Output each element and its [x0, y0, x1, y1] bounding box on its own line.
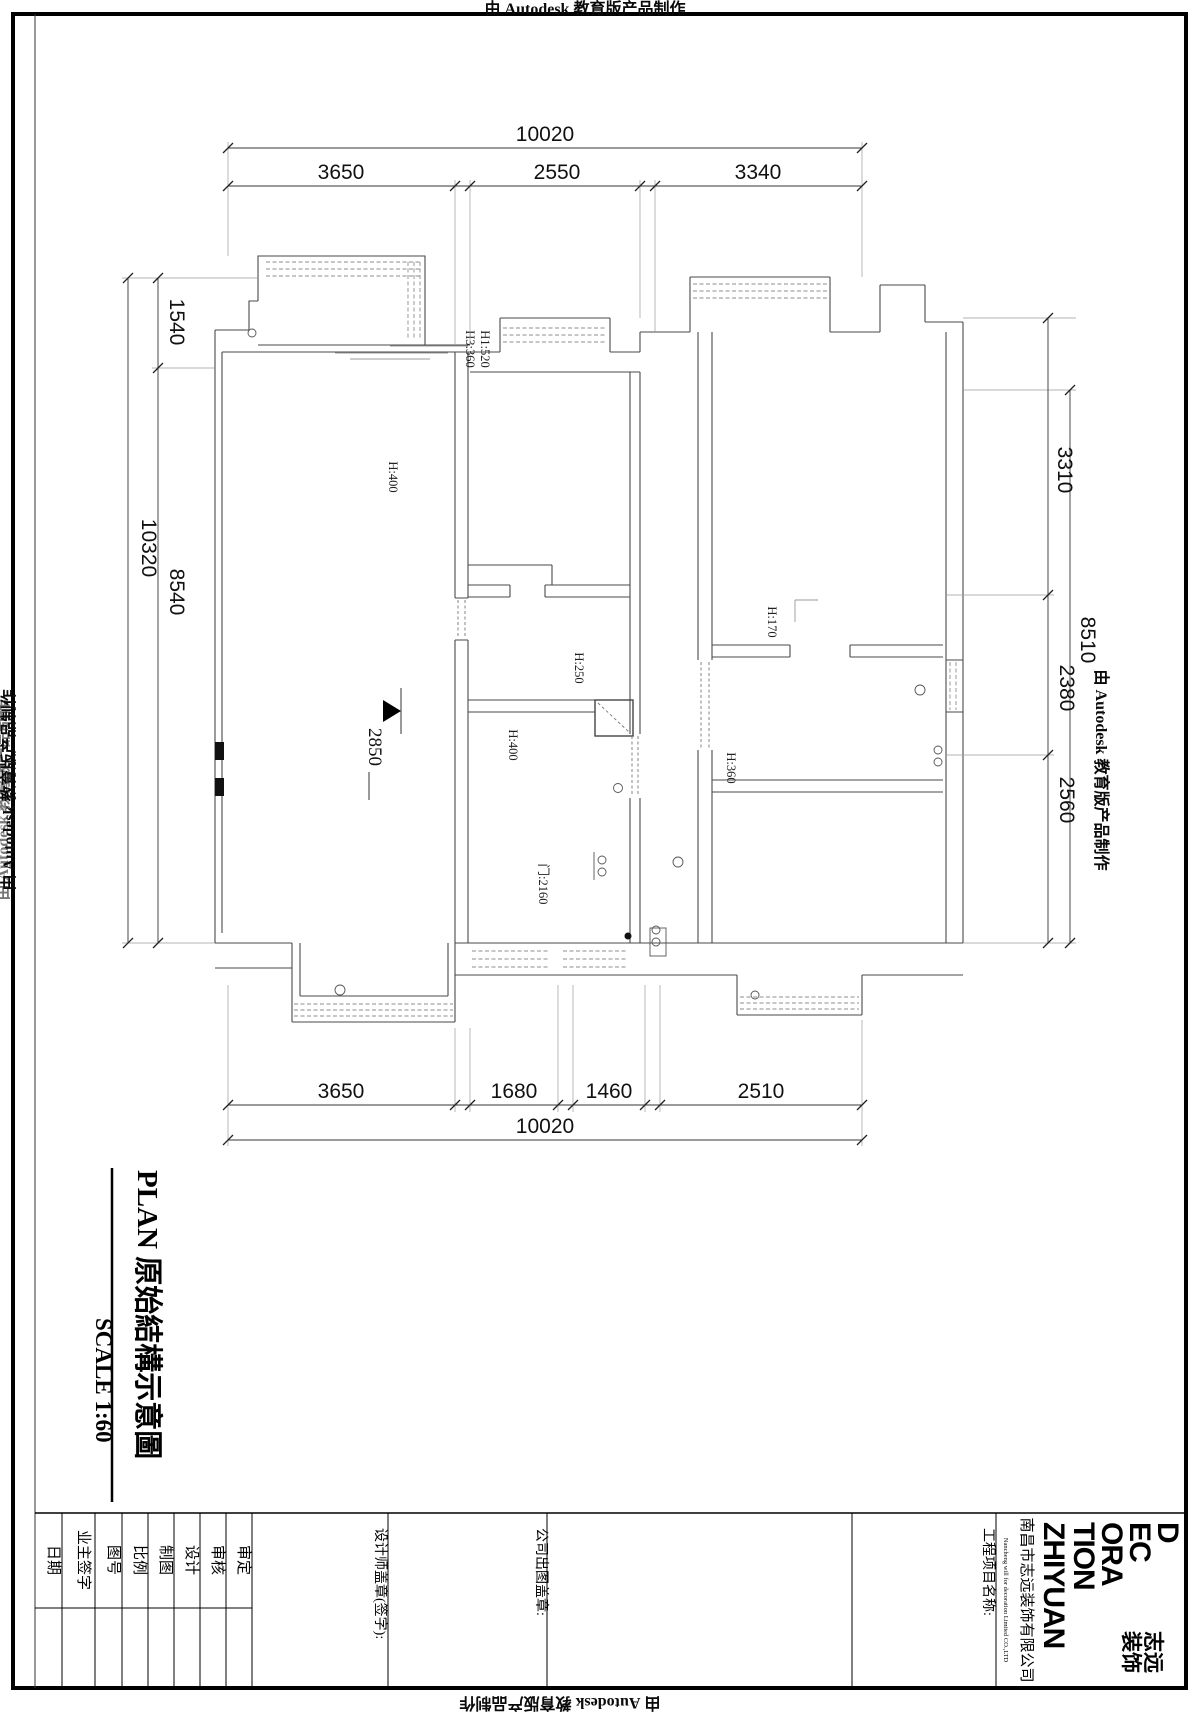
drawing-title: PLAN 原始結構示意圖 SCALE 1:60	[91, 1168, 165, 1502]
title-block: 日期 业主签字 图号 比例 制图 设计 审核 审定 设计师盖章(签字): 公司出…	[35, 1513, 1186, 1688]
field-date: 日期	[45, 1545, 62, 1575]
label-doorway-h: H:360	[724, 752, 738, 783]
autodesk-banners: 由 Autodesk 教育版产品制作 由 Autodesk 教育版产品制作 由 …	[0, 0, 1111, 1713]
floor-drain	[625, 933, 632, 940]
label-passage-h: H:400	[506, 729, 520, 760]
field-scale: 比例	[131, 1545, 148, 1575]
dim-bottom-seg3: 1460	[586, 1080, 633, 1103]
banner-left-ghost: 由 Autodesk 教育版产品制作	[0, 700, 12, 901]
wall-section-mark-2	[215, 778, 224, 796]
walls	[215, 256, 963, 1022]
dimensions-bottom: 3650 1680 1460 2510 10020	[223, 985, 867, 1146]
field-drawing-no: 图号	[105, 1545, 122, 1575]
company-name-cn: 南昌市志远装饰有限公司	[1018, 1517, 1035, 1682]
dim-top-overall: 10020	[516, 123, 574, 146]
logo-cn-1: 志远	[1141, 1631, 1165, 1673]
ceiling-height-marker: 2850	[364, 688, 401, 800]
label-bedroom-h: H:170	[765, 606, 779, 637]
banner-bottom: 由 Autodesk 教育版产品制作	[460, 1694, 661, 1713]
dimensions-left: 1540 10320 8540	[122, 273, 258, 948]
dim-bottom-seg4: 2510	[738, 1080, 785, 1103]
dim-top-seg2: 2550	[534, 161, 581, 184]
label-closet-h: H:250	[572, 652, 586, 683]
dim-top-seg3: 3340	[735, 161, 782, 184]
dimensions-top: 10020 3650 2550 3340	[223, 123, 867, 345]
logo-cn-2: 装饰	[1119, 1631, 1143, 1673]
company-logo: D EC ORA TION ZHIYUAN 志远 装饰	[1037, 1522, 1184, 1673]
closet-stubs	[335, 346, 818, 622]
floor-plan-drawing: 由 Autodesk 教育版产品制作 由 Autodesk 教育版产品制作 由 …	[0, 0, 1200, 1717]
field-designed: 设计	[183, 1545, 200, 1575]
designer-stamp-label: 设计师盖章(签字):	[372, 1528, 389, 1639]
wall-section-mark-1	[215, 742, 224, 760]
marker-triangle	[383, 700, 401, 722]
dim-right-overall: 8510	[1076, 617, 1099, 664]
dim-right-seg3: 2560	[1055, 777, 1078, 824]
plumbing-fixtures	[248, 329, 942, 999]
dim-bottom-seg1: 3650	[318, 1080, 365, 1103]
dim-bottom-overall: 10020	[516, 1115, 574, 1138]
field-owner-sign: 业主签字	[75, 1530, 92, 1590]
windows	[266, 262, 956, 1016]
dim-right-seg2: 2380	[1055, 665, 1078, 712]
dimensions-right: 3310 8510 2380 2560	[946, 313, 1099, 948]
label-door-height: 门:2160	[536, 864, 551, 905]
dim-top-seg1: 3650	[318, 161, 365, 184]
logo-line-4: TION	[1067, 1522, 1100, 1590]
banner-top: 由 Autodesk 教育版产品制作	[485, 0, 686, 18]
drawing-title-text: PLAN 原始結構示意圖	[131, 1170, 165, 1459]
drawing-scale-text: SCALE 1:60	[91, 1318, 116, 1443]
ceiling-height-label: 2850	[364, 728, 385, 766]
dim-left-seg2: 8540	[165, 569, 188, 616]
banner-right: 由 Autodesk 教育版产品制作	[1092, 670, 1111, 871]
cad-sheet: 由 Autodesk 教育版产品制作 由 Autodesk 教育版产品制作 由 …	[0, 0, 1200, 1717]
field-drafted: 制图	[157, 1545, 174, 1575]
sheet-border	[13, 14, 1186, 1688]
dim-right-seg1: 3310	[1053, 447, 1076, 494]
company-name-en: Nancheng will for decoration Limited CO.…	[1002, 1538, 1009, 1663]
label-bay-h1: H1:520	[478, 330, 492, 368]
logo-line-5: ZHIYUAN	[1037, 1522, 1070, 1648]
dim-left-overall: 10320	[137, 519, 160, 577]
room-labels: H3:360 H1:520 H:400 H:250 H:400 H:170 H:…	[386, 330, 779, 904]
dim-left-seg1: 1540	[165, 299, 188, 346]
dim-bottom-seg2: 1680	[491, 1080, 538, 1103]
field-approved: 审定	[235, 1545, 252, 1575]
label-living-h: H:400	[386, 461, 400, 492]
project-name-label: 工程项目名称:	[980, 1528, 996, 1616]
field-reviewed: 审核	[209, 1545, 226, 1575]
door-openings	[458, 600, 709, 796]
company-stamp-label: 公司出图盖章:	[533, 1528, 550, 1616]
